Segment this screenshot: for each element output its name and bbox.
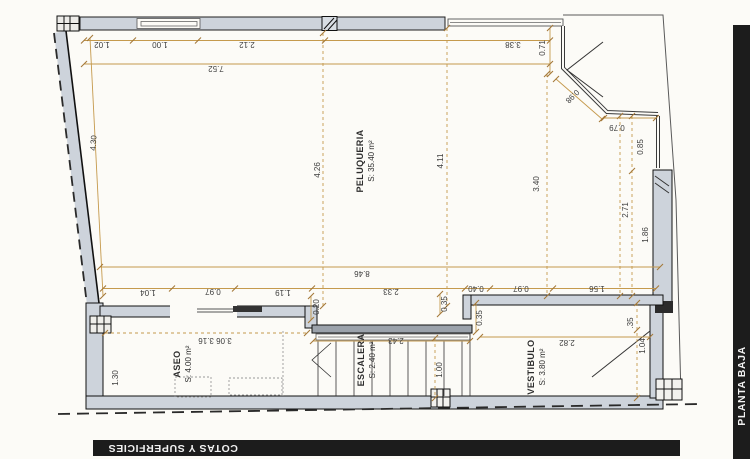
- dim-bot-1: 1.04: [126, 287, 170, 297]
- stair-direction-arrow: [312, 343, 331, 377]
- dim-aseo-h: 1.30: [111, 356, 121, 400]
- column-top-left: [57, 16, 79, 31]
- dim-aseo-w: 3.06 3.16: [193, 335, 237, 345]
- window-storefront: [448, 19, 563, 26]
- dim-top-total: 7.52: [194, 63, 238, 73]
- room-name: ESCALERA: [355, 315, 367, 405]
- room-label-peluqueria: PELUQUERIA S: 35.40 m²: [354, 116, 378, 206]
- title-cotas: COTAS Y SUPERFICIES: [98, 441, 248, 455]
- room-label-aseo: ASEO S: 4.00 m²: [171, 319, 195, 409]
- dim-step-v: 0.20: [312, 285, 322, 329]
- dim-mid-right: 3.40: [532, 162, 542, 206]
- title-planta: PLANTA BAJA: [735, 341, 749, 431]
- room-name: VESTIBULO: [525, 322, 537, 412]
- column-top-middle: [322, 17, 337, 31]
- dim-vest-w: 2.82: [545, 337, 589, 347]
- dim-stair-w: 2.43: [374, 335, 418, 345]
- room-label-escalera: ESCALERA S: 2.40 m²: [355, 315, 379, 405]
- dim-step-v2: 0.35: [440, 282, 450, 326]
- dim-right-total: 2.71: [621, 188, 631, 232]
- room-area: S: 3.80 m²: [537, 322, 548, 412]
- dim-top-4: 3.38: [491, 39, 535, 49]
- floor-plan-sheet: 1.02 1.00 2.12 3.38 7.52 0.71 0.98 0.79 …: [0, 0, 750, 459]
- dim-stair-v: 1.00: [435, 348, 445, 392]
- room-label-vestibulo: VESTIBULO S: 3.80 m²: [525, 322, 549, 412]
- room-area: S: 2.40 m²: [367, 315, 378, 405]
- dim-right-upper: 0.85: [636, 125, 646, 169]
- room-area: S: 35.40 m²: [366, 116, 377, 206]
- window-top: [137, 19, 200, 29]
- dim-chamfer-h: 0.79: [595, 122, 639, 132]
- dim-bot-7: 1.56: [575, 283, 619, 293]
- dim-width-total: 8.46: [340, 268, 384, 278]
- column-bottom-right: [656, 379, 682, 400]
- dim-top-1: 1.02: [80, 39, 124, 49]
- dim-bot-4: 2.33: [369, 286, 413, 296]
- dim-top-2: 1.00: [138, 39, 182, 49]
- dim-mid-left: 4.26: [313, 148, 323, 192]
- dim-vest-step: 0.35: [475, 296, 485, 340]
- dim-bot-6: 0.97: [499, 283, 543, 293]
- room-name: PELUQUERIA: [354, 116, 366, 206]
- dim-top-3: 2.12: [225, 39, 269, 49]
- room-area: S: 4.00 m²: [183, 319, 194, 409]
- dim-chamfer-v: 0.71: [538, 26, 548, 70]
- room-name: ASEO: [171, 319, 183, 409]
- dim-bot-2: 0.97: [191, 286, 235, 296]
- dim-bot-5: 0.40: [454, 283, 498, 293]
- dim-right-lower: 1.86: [641, 213, 651, 257]
- dim-vest-v2: 1.04: [638, 324, 648, 368]
- dim-mid-center: 4.11: [436, 139, 446, 183]
- dim-vest-v1: .35: [626, 301, 636, 345]
- dim-bot-3: 1.19: [261, 287, 305, 297]
